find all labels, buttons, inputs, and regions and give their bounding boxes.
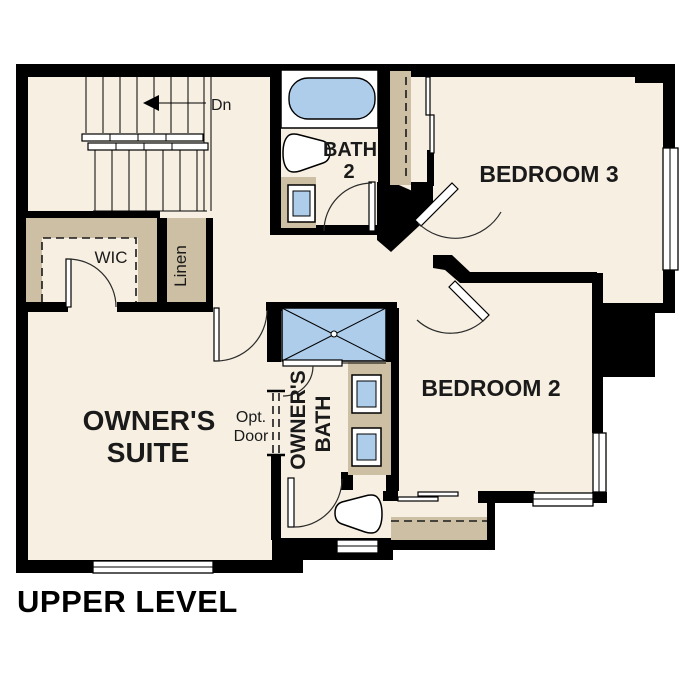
shower-door: [283, 360, 342, 366]
optional-door-label-line1: Opt.: [236, 409, 266, 426]
wall-bath-west-mid: [271, 455, 281, 478]
wall-bath2-east: [378, 64, 390, 186]
page-title: UPPER LEVEL: [17, 584, 238, 619]
wall-wic-bottom-left: [16, 302, 68, 312]
bathtub: [289, 78, 375, 119]
linen-label: Linen: [171, 245, 190, 287]
wall-left: [16, 64, 28, 573]
window-bedroom2-bottom: [533, 493, 593, 506]
bath2-label-line1: BATH: [323, 139, 377, 161]
wic-shelf-left: [26, 238, 42, 302]
wall-linen-right: [206, 218, 213, 302]
wall-toiletroom-west: [271, 478, 281, 540]
owners-bath-label-line1: OWNER'S: [287, 370, 310, 470]
bedroom3-label: BEDROOM 3: [479, 161, 618, 187]
window-bedroom3-right: [663, 148, 678, 270]
window-owners-bath: [337, 540, 378, 553]
bedroom3-closet-shelf: [390, 71, 411, 185]
wall-bedroom2-bottom: [478, 491, 535, 503]
wall-bath-west-upper: [267, 308, 281, 362]
wall-bedroom2-corner: [592, 492, 607, 503]
stair-railing-upper: [82, 134, 203, 141]
wall-mass-east: [598, 308, 655, 377]
wall-closet2-left-stub: [383, 491, 398, 501]
wic-shelf-top: [26, 218, 157, 238]
wic-label: WIC: [94, 248, 127, 267]
floor-plan-drawing: OWNER'S SUITE BEDROOM 3 BEDROOM 2 BATH 2…: [0, 0, 687, 687]
wall-closet3-east: [427, 150, 434, 186]
window-owners-suite: [93, 561, 213, 573]
owners-suite-label-line2: SUITE: [107, 437, 189, 468]
wic-shelf-right: [138, 238, 157, 302]
wall-suite-north-west: [117, 302, 213, 312]
wall-closet2-bottom: [383, 540, 495, 550]
bath2-label-line2: 2: [343, 161, 354, 183]
optional-door-label-line2: Door: [234, 428, 269, 445]
owners-suite-label-line1: OWNER'S: [83, 405, 216, 436]
owners-bath-label-line2: BATH: [312, 396, 335, 453]
sink-owners-bath-2: [352, 428, 381, 466]
stairs-down-label: Dn: [211, 97, 231, 114]
bedroom2-label: BEDROOM 2: [421, 375, 560, 401]
wall-bedroom2-right: [592, 273, 603, 433]
wall-linen-left: [157, 218, 167, 302]
window-bedroom2-right: [593, 433, 606, 492]
stair-railing-lower: [88, 143, 208, 150]
sink-bath2: [288, 185, 315, 222]
wall-top-notch: [635, 64, 663, 83]
wall-bath2-west: [270, 64, 281, 235]
sink-owners-bath-1: [352, 375, 381, 413]
floor-plan-page: OWNER'S SUITE BEDROOM 3 BEDROOM 2 BATH 2…: [0, 0, 687, 687]
